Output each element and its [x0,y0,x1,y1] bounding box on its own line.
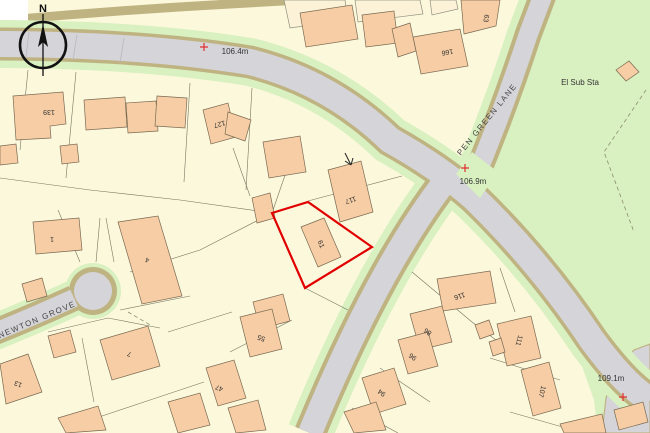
spot-height-label: 106.9m [460,177,487,186]
building [155,96,187,128]
building [0,144,18,165]
house-number-label: 63 [481,14,489,23]
building [84,97,127,130]
building-166 [413,29,468,74]
compass-north-label: N [39,3,47,15]
map-viewport[interactable]: 139 127 166 63 117 61 55 47 1 4 13 7 116… [0,0,650,433]
spot-height-label: 109.1m [598,374,625,383]
house-number-label: 1 [50,235,54,242]
building [263,136,306,178]
map-canvas: 139 127 166 63 117 61 55 47 1 4 13 7 116… [0,0,650,433]
building [126,101,158,133]
el-sub-sta-label: El Sub Sta [561,78,599,87]
building-1 [33,218,82,254]
building [60,144,79,164]
spot-height-label: 106.4m [222,47,249,56]
house-number-label: 139 [43,108,55,115]
